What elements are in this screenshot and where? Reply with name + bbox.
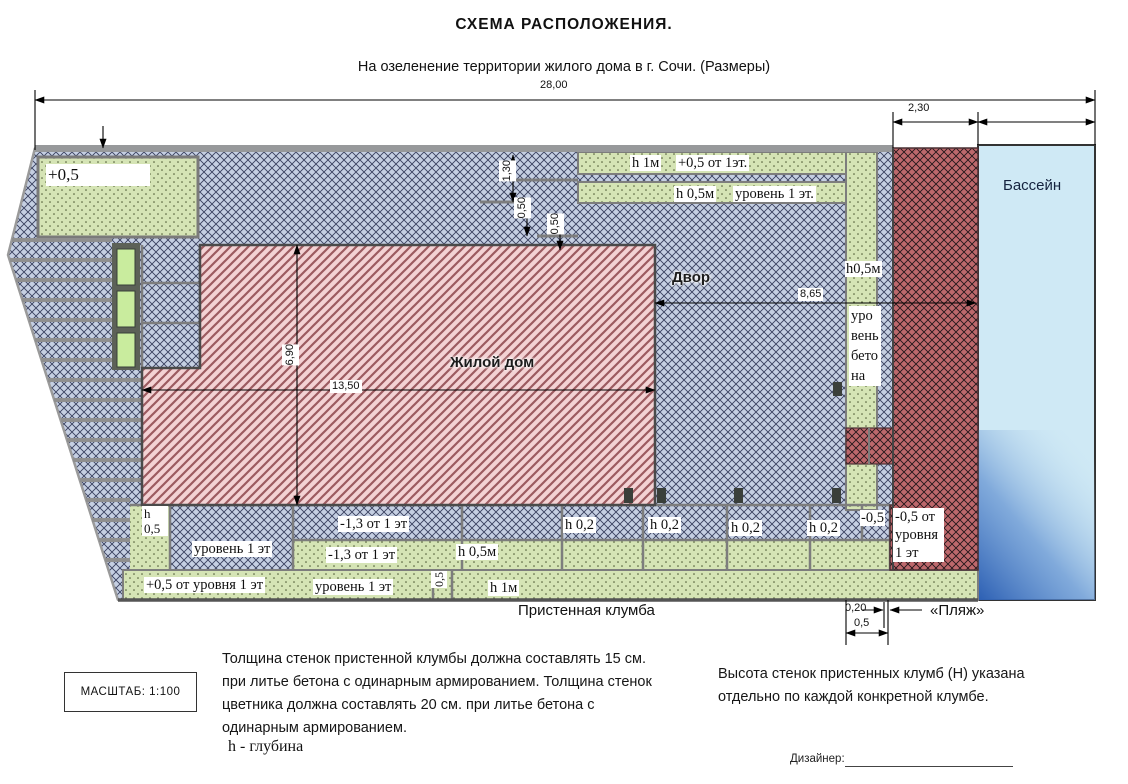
dim-05: 0,5 — [852, 617, 871, 630]
bed-label-right-depth: h0,5м — [845, 261, 882, 277]
dim-house-width: 13,50 — [330, 380, 362, 393]
scale-label: МАСШТАБ: 1:100 — [81, 686, 181, 698]
bed-label-level1-b: уровень 1 эт — [313, 579, 393, 595]
dim-020: 0,20 — [843, 602, 868, 615]
bed-label-top-left: +0,5 — [46, 164, 150, 186]
bed-label-h1-b: h 1м — [488, 580, 519, 596]
bed-label-m13-b: -1,3 от 1 эт — [326, 547, 397, 563]
beach-label: «Пляж» — [930, 602, 984, 619]
dim-130: 1,30 — [499, 160, 516, 181]
bed-label-h05-b: h 0,5м — [456, 544, 498, 560]
page-subtitle: На озеленение территории жилого дома в г… — [0, 59, 1128, 75]
dim-house-height: 6,90 — [282, 344, 299, 365]
page-title: СХЕМА РАСПОЛОЖЕНИЯ. — [0, 16, 1128, 34]
bed-label-m05: -0,5 — [860, 510, 885, 526]
note-left: Толщина стенок пристенной клумбы должна … — [222, 648, 674, 740]
bed-label-strip2-level: уровень 1 эт. — [733, 186, 816, 202]
top-boundary-wall — [35, 145, 893, 152]
bed-label-strip1-level: +0,5 от 1эт. — [676, 155, 749, 171]
bed-label-v05: 0,5 — [431, 571, 447, 588]
layout-scheme-page: СХЕМА РАСПОЛОЖЕНИЯ. На озеленение террит… — [0, 0, 1128, 784]
dim-050b: 0,50 — [547, 213, 564, 234]
bed-label-m05-long: -0,5 от уровня 1 эт — [893, 508, 944, 562]
bed-label-level1-a: уровень 1 эт — [192, 541, 272, 557]
column-window — [117, 333, 135, 367]
site-plan-drawing — [0, 0, 1128, 660]
bed-label-concrete-level: уро вень бето на — [849, 306, 881, 386]
bed-label-strip2-depth: h 0,5м — [674, 186, 716, 202]
wall-bed-caption: Пристенная клумба — [518, 602, 655, 619]
house-label: Жилой дом — [450, 354, 534, 371]
house-area — [142, 245, 655, 505]
bed-label-h02-3: h 0,2 — [729, 520, 762, 536]
bed-label-m13-a: -1,3 от 1 эт — [338, 516, 409, 532]
pool-label: Бассейн — [1003, 177, 1061, 194]
bed-label-h02-1: h 0,2 — [563, 517, 596, 533]
pool-deep-end — [978, 430, 1095, 600]
column-window — [117, 249, 135, 285]
depth-legend: h - глубина — [228, 738, 303, 756]
dim-total-width: 28,00 — [538, 79, 570, 92]
note-right: Высота стенок пристенных клумб (Н) указа… — [718, 663, 1076, 709]
scale-box: МАСШТАБ: 1:100 — [64, 672, 197, 712]
bed-label-col-depth: h 0,5 — [142, 506, 168, 536]
designer-signature-line — [845, 752, 1013, 767]
bed-label-h02-2: h 0,2 — [648, 517, 681, 533]
dim-050a: 0,50 — [514, 197, 531, 218]
designer-label: Дизайнер: — [790, 753, 845, 765]
pool-wall — [890, 148, 978, 570]
bed-label-h02-4: h 0,2 — [807, 520, 840, 536]
bed-label-strip1-depth: h 1м — [630, 155, 661, 171]
column-window — [117, 291, 135, 327]
bed-label-plus05-long: +0,5 от уровня 1 эт — [144, 577, 265, 593]
dim-wall-width: 2,30 — [906, 102, 931, 115]
yard-label: Двор — [672, 269, 710, 286]
dim-yard-width: 8,65 — [798, 288, 823, 301]
